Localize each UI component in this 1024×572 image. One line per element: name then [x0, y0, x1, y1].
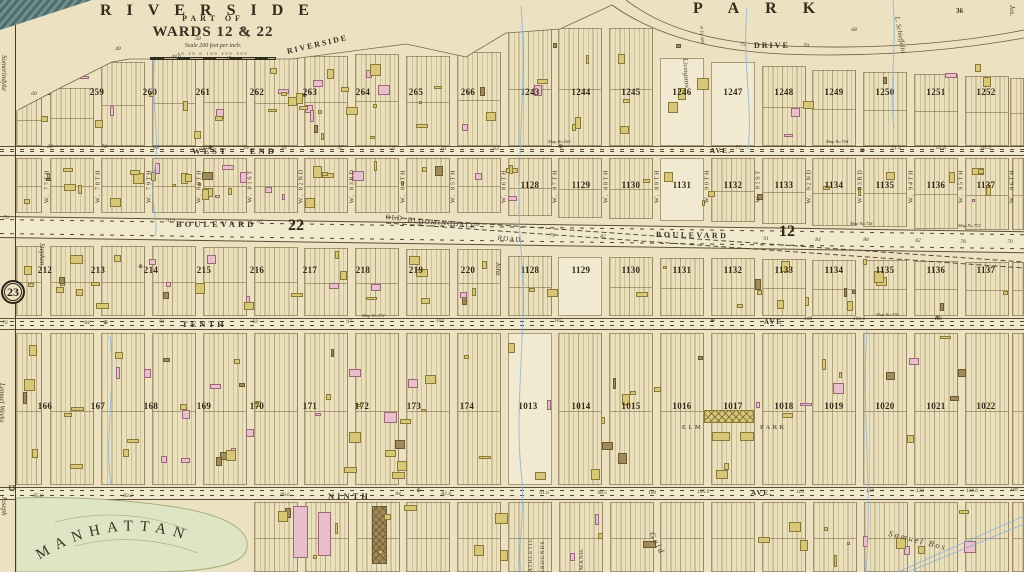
building-footprint — [384, 412, 397, 423]
building-footprint — [110, 198, 121, 208]
dimension-number: 78 — [960, 239, 966, 245]
map-label: 75 — [740, 42, 746, 48]
building-footprint — [202, 172, 213, 180]
building-footprint — [668, 102, 679, 113]
block-number: 1132 — [724, 180, 743, 190]
city-block — [406, 158, 450, 213]
building-footprint — [537, 79, 548, 84]
monument-marker: ⊕ — [935, 314, 940, 321]
building-footprint — [839, 372, 842, 378]
building-footprint — [110, 106, 114, 116]
block-number: 259 — [90, 87, 104, 97]
building-footprint — [755, 279, 761, 290]
monument-marker: ⊕ — [208, 144, 213, 151]
building-footprint — [508, 196, 517, 201]
building-footprint — [630, 391, 637, 395]
block-number: 260 — [143, 87, 157, 97]
city-block — [762, 158, 806, 224]
map-label: 68 — [851, 27, 857, 33]
building-footprint — [195, 283, 205, 293]
building-footprint — [777, 300, 785, 309]
dimension-number: 79 — [549, 233, 555, 239]
block-number: 218 — [356, 265, 370, 275]
city-block — [610, 502, 654, 572]
owner-name: John — [494, 262, 502, 276]
dimension-number: 63.9 — [981, 145, 991, 151]
dimension-number: 77 — [735, 145, 741, 151]
building-footprint — [24, 199, 31, 204]
building-footprint — [983, 77, 992, 87]
city-block — [914, 158, 958, 229]
building-footprint — [349, 369, 361, 377]
block-number: 1135 — [876, 265, 895, 275]
city-block — [812, 158, 856, 226]
building-footprint — [397, 461, 407, 471]
block-number: 173 — [407, 401, 421, 411]
building-footprint — [591, 469, 600, 480]
elm-park-building — [712, 432, 730, 441]
block-number: 213 — [91, 265, 105, 275]
building-footprint — [909, 358, 919, 365]
building-footprint — [278, 511, 289, 522]
city-block — [863, 158, 907, 227]
building-footprint — [883, 77, 887, 84]
riverside-park-name: RIVERSIDE — [100, 2, 324, 20]
building-footprint — [202, 189, 209, 200]
building-footprint — [127, 439, 139, 444]
dimension-number: 70 — [1007, 239, 1013, 245]
title-scale-note: Scale 200 feet per inch. — [128, 43, 298, 49]
dimension-number: 82 — [600, 234, 606, 240]
building-footprint — [246, 429, 254, 437]
dimension-number: 102 — [436, 318, 444, 324]
monument-marker: ⊕ — [416, 487, 421, 494]
block-number: 1249 — [824, 87, 843, 97]
building-footprint — [329, 283, 339, 289]
block-number: 1136 — [927, 180, 946, 190]
dimension-number: 120 — [866, 488, 874, 494]
building-footprint — [409, 256, 420, 265]
street-name-label: W. 90TH — [704, 169, 711, 203]
building-footprint — [400, 419, 411, 424]
block-number: 170 — [250, 401, 264, 411]
building-footprint — [949, 172, 955, 183]
boulevard-label: BOULEVARD — [176, 219, 256, 229]
building-footprint — [416, 124, 428, 128]
building-footprint — [313, 166, 322, 178]
building-footprint — [78, 185, 82, 194]
building-footprint — [155, 163, 160, 174]
dimension-number: 110.6 — [966, 488, 978, 494]
city-block — [304, 248, 348, 316]
building-footprint — [598, 533, 603, 539]
block-number: 171 — [303, 401, 317, 411]
building-footprint — [322, 172, 328, 176]
building-footprint — [216, 457, 222, 466]
city-block — [152, 246, 196, 316]
building-footprint — [116, 367, 120, 379]
building-footprint — [318, 110, 323, 114]
dimension-number: 83.2 — [123, 493, 133, 499]
building-footprint — [114, 255, 121, 262]
building-footprint — [421, 298, 430, 304]
block-number: 219 — [409, 265, 423, 275]
owner-name: Somerindyke — [0, 55, 8, 91]
building-footprint — [462, 124, 469, 130]
dimension-number: 91 — [763, 236, 769, 242]
ward-12-number: 12 — [779, 223, 795, 241]
building-footprint — [29, 345, 37, 357]
ninth-ave-label: AVE. — [751, 489, 773, 497]
city-block — [457, 52, 501, 146]
block-number: 265 — [409, 87, 423, 97]
old-bloomingdale-road-label: OLD — [385, 213, 403, 222]
building-footprint — [800, 403, 813, 407]
scale-tick-numbers: 40 20 0 100 200 300 — [128, 51, 298, 56]
city-block — [1012, 333, 1024, 485]
building-footprint — [620, 126, 629, 134]
map-note: Map No.772 — [958, 223, 981, 228]
building-footprint — [182, 410, 191, 419]
dimension-number: 76 — [3, 215, 9, 221]
map-title-block: PART OF WARDS 12 & 22 Scale 200 feet per… — [128, 14, 298, 60]
block-number: 168 — [144, 401, 158, 411]
block-number: 216 — [250, 265, 264, 275]
building-footprint — [64, 413, 72, 417]
city-block — [304, 56, 348, 146]
city-block — [101, 333, 145, 485]
building-footprint — [163, 358, 170, 362]
block-number: 1133 — [775, 265, 794, 275]
building-footprint — [421, 409, 426, 412]
elm-park-label: ELM — [682, 424, 703, 431]
monument-marker: ⊕ — [710, 317, 715, 324]
block-number: 1013 — [518, 401, 537, 411]
block-number: 1247 — [723, 87, 742, 97]
pond-contour — [75, 540, 198, 553]
building-footprint — [486, 112, 496, 121]
manhattan-terrain — [16, 497, 247, 572]
monument-marker: ⊕ — [302, 92, 307, 99]
building-footprint — [310, 110, 314, 122]
building-footprint — [958, 369, 966, 378]
dimension-number: 67 — [257, 219, 263, 225]
block-number: 264 — [356, 87, 370, 97]
building-footprint — [166, 282, 171, 287]
city-block — [1012, 262, 1024, 316]
building-footprint — [847, 542, 850, 546]
street-name-label: W. 93RD — [856, 169, 863, 204]
pond-contour — [55, 515, 188, 530]
building-footprint — [852, 290, 857, 294]
building-footprint — [95, 120, 103, 127]
dimension-number: 93 — [252, 319, 258, 325]
building-footprint — [464, 355, 469, 359]
building-footprint — [373, 104, 377, 108]
building-footprint — [56, 287, 64, 294]
athletic-grounds-label: ATHLETIC — [528, 538, 534, 572]
block-number: 1133 — [775, 180, 794, 190]
map-label: 50 — [195, 36, 201, 42]
building-footprint — [945, 73, 957, 77]
building-footprint — [698, 356, 703, 360]
park-name: PARK — [693, 0, 841, 18]
block-number: 1131 — [673, 265, 692, 275]
map-label: 13 — [8, 484, 15, 492]
building-footprint — [716, 470, 729, 479]
block-number: 1252 — [976, 87, 995, 97]
owner-name: Joseph — [0, 496, 8, 515]
block-number: 261 — [196, 87, 210, 97]
building-footprint — [222, 165, 234, 170]
building-footprint — [293, 506, 308, 558]
block-number: 169 — [197, 401, 211, 411]
tenth-avenue-strip — [0, 318, 1024, 330]
block-number: 1243 — [520, 87, 539, 97]
dimension-number: 57 — [337, 145, 343, 151]
building-footprint — [63, 168, 73, 172]
building-footprint — [422, 167, 426, 172]
tenth-ave-label: AVE — [764, 318, 782, 326]
map-label: 47 — [225, 56, 231, 62]
building-footprint — [479, 456, 491, 459]
building-footprint — [586, 55, 590, 65]
atlas-map-plate: MANHATTAN PART OF WARDS 12 & 22 Scale 20… — [0, 0, 1024, 572]
city-block — [16, 158, 42, 213]
city-block — [406, 502, 450, 572]
ward-22-number: 22 — [288, 217, 304, 235]
building-footprint — [460, 292, 467, 298]
manhattan-arc-text: MANHATTAN — [33, 518, 193, 563]
street-name-label: W. 77TH — [44, 169, 51, 203]
building-footprint — [654, 387, 660, 392]
building-footprint — [789, 522, 801, 533]
building-footprint — [65, 70, 75, 80]
building-footprint — [59, 277, 65, 284]
dimension-number: 82.4 — [441, 491, 451, 497]
building-footprint — [161, 456, 167, 463]
city-block — [355, 248, 399, 316]
dimension-number: 84 — [395, 491, 401, 497]
dimension-number: 100 — [1010, 487, 1018, 493]
dimension-number: 98.5 — [597, 490, 607, 496]
building-footprint — [315, 413, 322, 416]
building-footprint — [724, 463, 729, 470]
building-footprint — [313, 555, 317, 560]
building-footprint — [24, 266, 32, 275]
elm-park-building — [704, 410, 754, 423]
building-footprint — [349, 432, 361, 443]
map-note: Map No.370 — [876, 312, 899, 317]
building-footprint — [663, 266, 668, 269]
city-block — [812, 70, 856, 146]
ninth-ave-label: NINTH — [328, 491, 371, 501]
block-number: 1245 — [621, 87, 640, 97]
building-footprint — [370, 64, 381, 75]
building-footprint — [70, 464, 83, 469]
block-number: 1129 — [572, 265, 591, 275]
building-footprint — [408, 379, 418, 388]
block-number: 212 — [38, 265, 52, 275]
building-footprint — [215, 116, 223, 121]
boulevard-label: BOULEVARD — [656, 230, 729, 240]
street-name-label: W. 86TH — [501, 169, 508, 203]
building-footprint — [595, 514, 599, 525]
city-block — [101, 158, 145, 213]
building-footprint — [756, 402, 761, 408]
plate-number-badge: 23 — [1, 280, 25, 304]
street-name-label: W. 95TH — [958, 169, 965, 203]
building-footprint — [313, 80, 323, 87]
building-footprint — [482, 261, 487, 269]
dimension-number: 100 — [648, 490, 656, 496]
street-name-label: W. 84TH — [399, 169, 406, 203]
building-footprint — [572, 124, 576, 130]
building-footprint — [940, 303, 944, 311]
building-footprint — [940, 336, 950, 339]
city-block — [16, 92, 42, 146]
building-footprint — [844, 288, 847, 297]
block-number: 214 — [144, 265, 158, 275]
block-number: 1129 — [572, 180, 591, 190]
building-footprint — [462, 297, 467, 305]
block-number: 1015 — [621, 401, 640, 411]
dimension-number: 62.8 — [936, 145, 946, 151]
elm-park-label: PARK — [760, 424, 787, 431]
city-block — [152, 58, 196, 146]
building-footprint — [130, 170, 140, 175]
building-footprint — [863, 536, 869, 547]
title-wards: WARDS 12 & 22 — [128, 24, 298, 41]
building-footprint — [370, 136, 376, 140]
riverside-drive-label: DRIVE — [754, 41, 790, 50]
dimension-number: 84 — [815, 237, 821, 243]
building-footprint — [570, 553, 575, 561]
dimension-number: 122 — [916, 488, 924, 494]
city-block — [254, 502, 298, 572]
building-footprint — [314, 125, 318, 133]
block-number: 1137 — [977, 265, 996, 275]
building-footprint — [228, 188, 232, 196]
block-number: 217 — [303, 265, 317, 275]
building-footprint — [226, 450, 236, 462]
building-footprint — [757, 290, 762, 295]
building-footprint — [281, 92, 287, 96]
building-footprint — [163, 292, 169, 299]
building-footprint — [371, 284, 381, 291]
owner-name: Stephen — [38, 243, 46, 265]
building-footprint — [863, 259, 867, 265]
building-footprint — [758, 537, 770, 543]
building-footprint — [91, 282, 100, 287]
city-block — [457, 158, 501, 213]
monument-marker: ⊕ — [860, 147, 865, 154]
street-name-label: W. 80TH — [196, 169, 203, 203]
block-number: 1246 — [672, 87, 691, 97]
building-footprint — [500, 550, 508, 561]
building-footprint — [623, 99, 630, 103]
block-number: 1021 — [926, 401, 945, 411]
block-number: 1132 — [724, 265, 743, 275]
street-name-label: W. 78TH — [94, 169, 101, 203]
city-block — [711, 502, 755, 572]
block-number: 1251 — [926, 87, 945, 97]
building-footprint — [553, 43, 557, 48]
building-footprint — [959, 510, 969, 514]
building-footprint — [508, 343, 515, 353]
building-footprint — [244, 302, 254, 309]
building-footprint — [70, 255, 83, 264]
building-footprint — [737, 304, 743, 308]
street-name-label: W. 88TH — [602, 169, 609, 203]
building-footprint — [822, 359, 826, 371]
dimension-number: 82 — [915, 238, 921, 244]
block-number: 1128 — [521, 265, 540, 275]
building-footprint — [115, 352, 123, 359]
street-name-label: W. 92ND — [806, 168, 813, 203]
city-block — [914, 74, 958, 146]
building-footprint — [215, 195, 220, 198]
street-name-label: W. 82ND — [298, 168, 305, 203]
block-number: 262 — [250, 87, 264, 97]
street-name-label: W. 83RD — [348, 169, 355, 204]
block-number: 1137 — [977, 180, 996, 190]
map-note: Map No.372 — [362, 313, 385, 318]
dimension-number: 71.3 — [891, 145, 901, 151]
dimension-number: 63 — [493, 146, 499, 152]
street-name-label: W. 87TH — [552, 169, 559, 203]
building-footprint — [24, 379, 35, 390]
owner-name: L. Schieffelin — [893, 16, 907, 54]
block-number: 166 — [38, 401, 52, 411]
block-number: 1130 — [622, 265, 641, 275]
building-footprint — [636, 292, 648, 297]
building-footprint — [123, 449, 129, 458]
building-footprint — [76, 289, 83, 295]
city-block — [203, 56, 247, 146]
building-footprint — [833, 383, 845, 394]
building-footprint — [547, 289, 558, 297]
tenth-ave-label: TENTH — [182, 319, 227, 329]
building-footprint — [327, 69, 334, 79]
block-number: 174 — [460, 401, 474, 411]
building-footprint — [800, 540, 809, 551]
building-footprint — [975, 64, 981, 72]
dimension-number: 89.6 — [280, 492, 290, 498]
monument-marker: ⊕ — [103, 319, 108, 326]
dimension-number: 74 — [101, 144, 107, 150]
building-footprint — [509, 165, 514, 175]
city-block — [711, 158, 755, 222]
block-number: 1014 — [571, 401, 590, 411]
block-number: 1019 — [824, 401, 843, 411]
athletic-grounds-label: GROUNDS — [540, 540, 546, 572]
city-block — [711, 62, 755, 146]
street-name-label: W. 79TH — [145, 169, 152, 203]
building-footprint — [782, 413, 794, 419]
building-footprint — [335, 251, 339, 259]
building-footprint — [32, 449, 37, 458]
building-footprint — [664, 172, 673, 182]
building-footprint — [144, 369, 151, 379]
building-footprint — [495, 513, 507, 525]
building-footprint — [392, 472, 405, 479]
dimension-number: 101.6 — [853, 316, 865, 322]
street-name-label: W. 81ST — [247, 169, 254, 202]
map-label: 36 — [956, 7, 963, 15]
map-label: 70 — [803, 43, 809, 49]
building-footprint — [480, 87, 484, 96]
